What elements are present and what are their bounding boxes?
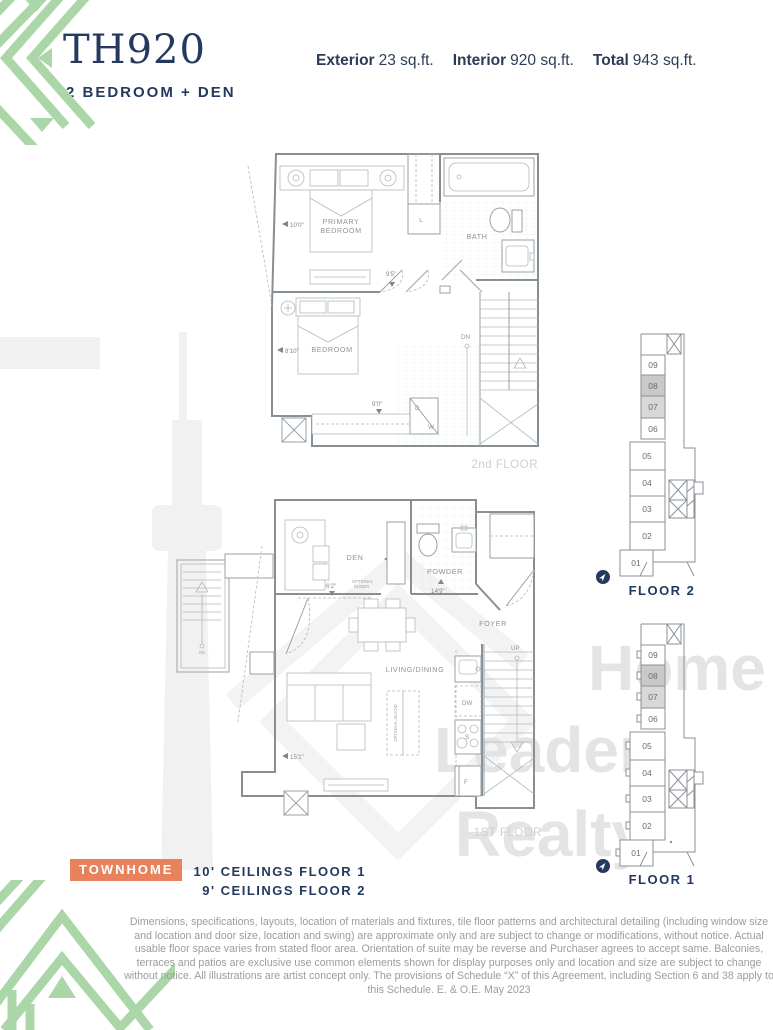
floorplan-page: Home Leader Realty (0, 0, 773, 1030)
compass-icon-floor2 (596, 570, 610, 584)
bathtub (444, 158, 534, 196)
dim-living-width: 15'1" (290, 754, 304, 761)
floor2-plan-label: 2nd FLOOR (472, 459, 539, 471)
linen-closet: L (408, 154, 440, 234)
kp2-unit-08: 08 (648, 381, 658, 391)
kp2-unit-04: 04 (642, 478, 652, 488)
toilet-tank (417, 524, 439, 533)
ceiling-line-2: 9' CEILINGS FLOOR 2 (193, 881, 366, 900)
kp2-unit-01: 01 (631, 558, 641, 568)
optional-island-label: OPTIONAL ISLAND (393, 704, 398, 741)
dim-bedroom-depth: 8'10" (285, 348, 299, 355)
washer-label: W (428, 424, 434, 431)
dryer-label: D (415, 405, 420, 412)
kitchen: DW S F (455, 644, 482, 796)
terrace-dn-label: DN (199, 650, 205, 655)
living-dining-label: LIVING/DINING (386, 665, 445, 674)
fridge-label: F (464, 779, 468, 786)
stat-interior-label: Interior (453, 52, 506, 69)
stairs-up: UP (484, 644, 534, 796)
stat-exterior-value: 23 sq.ft. (379, 52, 434, 69)
dn-label: DN (461, 334, 470, 341)
keyplan-floor1-label: FLOOR 1 (607, 872, 717, 887)
stat-total-value: 943 sq.ft. (633, 52, 697, 69)
area-stats: Exterior23 sq.ft. Interior920 sq.ft. Tot… (316, 52, 697, 70)
primary-bedroom: PRIMARY BEDROOM 10'0" (280, 166, 404, 284)
dim-bedroom-width: 9'0" (372, 401, 382, 408)
stat-interior-value: 920 sq.ft. (510, 52, 574, 69)
townhome-badge: TOWNHOME (70, 859, 182, 881)
dim-hall: 9'5" (386, 271, 396, 278)
ceiling-info: TOWNHOME 10' CEILINGS FLOOR 1 9' CEILING… (70, 859, 366, 900)
bedroom-label: BEDROOM (311, 345, 352, 354)
kp2-unit-05: 05 (642, 451, 652, 461)
kp2-unit-07: 07 (648, 402, 658, 412)
stat-total-label: Total (593, 52, 629, 69)
elevator-core (669, 480, 694, 518)
ceiling-line-1: 10' CEILINGS FLOOR 1 (193, 862, 366, 881)
kp1-unit-07: 07 (648, 692, 658, 702)
linen-label: L (419, 217, 423, 224)
stat-total: Total943 sq.ft. (593, 52, 697, 70)
floorplan-1st-floor: DEN 9'6" 6'2" OPTIONAL SLIDER POWDER 14'… (166, 484, 551, 854)
kp1-unit-09: 09 (648, 650, 658, 660)
optional-island: OPTIONAL ISLAND (387, 691, 419, 755)
kp1-unit-03: 03 (642, 794, 652, 804)
compass-icon-floor1 (596, 859, 610, 873)
floor1-plan-label: 1ST FLOOR (474, 827, 542, 839)
dining-table (358, 608, 406, 642)
keyplan-floor2-label: FLOOR 2 (607, 583, 717, 598)
kp2-unit-03: 03 (642, 504, 652, 514)
floorplan-2nd-floor: PRIMARY BEDROOM 10'0" BEDROOM 8'10" 9'0" (230, 146, 550, 481)
living-dining: LIVING/DINING OPTIONAL ISLAND 15'1" (282, 599, 444, 815)
toilet (419, 534, 437, 556)
kp1-unit-05: 05 (642, 741, 652, 751)
sofa (287, 673, 371, 721)
dim-primary-depth: 10'0" (290, 222, 304, 229)
terrace: DN (177, 546, 274, 722)
ceiling-lines: 10' CEILINGS FLOOR 1 9' CEILINGS FLOOR 2 (193, 859, 366, 900)
stove-label: S (465, 734, 469, 741)
elevator-core (669, 770, 694, 808)
vanity (502, 240, 534, 272)
kp1-unit-04: 04 (642, 768, 652, 778)
foyer: FOYER (479, 514, 534, 628)
legal-disclaimer: Dimensions, specifications, layouts, loc… (124, 916, 773, 997)
corner-pattern-top-left (0, 0, 128, 145)
kp2-unit-09: 09 (648, 360, 658, 370)
kp2-unit-06: 06 (648, 424, 658, 434)
stat-interior: Interior920 sq.ft. (453, 52, 574, 70)
dim-den-opening: 6'2" (326, 583, 336, 590)
optional-slider-2: SLIDER (354, 584, 369, 589)
kp1-unit-02: 02 (642, 821, 652, 831)
keyplan-floor2: 09 08 07 06 05 04 03 02 01 (607, 330, 717, 580)
stat-exterior: Exterior23 sq.ft. (316, 52, 434, 70)
primary-bedroom-label-1: PRIMARY (323, 217, 360, 226)
kp1-unit-08: 08 (648, 671, 658, 681)
toilet (490, 208, 510, 232)
laundry-closet: D W (410, 398, 438, 434)
den-label: DEN (347, 553, 364, 562)
kp1-unit-06: 06 (648, 714, 658, 724)
dim-main-width: 14'9" (431, 588, 445, 595)
balcony-line (248, 166, 272, 306)
kp1-unit-01: 01 (631, 848, 641, 858)
dishwasher-label: DW (462, 700, 472, 707)
keyplan-floor1: 09 08 07 06 05 04 03 02 01 (607, 620, 717, 870)
stat-exterior-label: Exterior (316, 52, 375, 69)
foyer-label: FOYER (479, 619, 507, 628)
up-label: UP (511, 645, 520, 652)
kp2-unit-02: 02 (642, 531, 652, 541)
ottoman (337, 724, 365, 750)
bath-label: BATH (466, 232, 487, 241)
primary-bedroom-label-2: BEDROOM (320, 226, 361, 235)
powder-label: POWDER (427, 567, 463, 576)
